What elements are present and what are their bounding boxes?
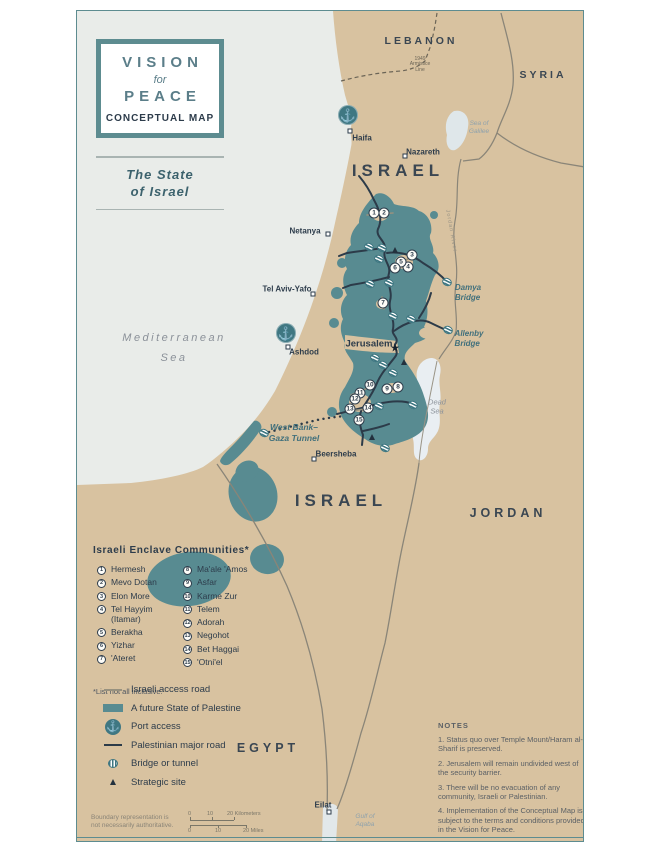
legend-row-fill: A future State of Palestine — [99, 702, 279, 715]
city-dot-haifa — [348, 129, 353, 134]
damya-bridge: Damya Bridge — [455, 283, 481, 303]
water-label-sea-of-galilee: Sea of Galilee — [469, 120, 489, 136]
scale-km-20: 20 Kilometers — [227, 811, 261, 817]
enclave-list-item: 12Adorah — [183, 618, 248, 628]
country-label-syria: SYRIA — [519, 69, 566, 81]
enclave-list-item: 13Negohot — [183, 631, 248, 641]
scale-tick — [190, 817, 191, 820]
map-symbol-legend: Israeli access roadA future State of Pal… — [99, 683, 279, 794]
enclave-marker-14: 14 — [363, 403, 374, 414]
bridge-tunnel-icon — [363, 241, 375, 252]
enclave-name: Telem — [197, 605, 220, 615]
city-label-eilat: Eilat — [315, 801, 332, 810]
bridge-tunnel-icon — [387, 310, 399, 321]
legend-row-port: ⚓Port access — [99, 720, 279, 733]
legend-swatch-site-icon — [99, 779, 127, 785]
bridge-tunnel-icon — [441, 276, 453, 287]
legend-swatch-road-dark-icon — [99, 744, 127, 747]
bridge-tunnel-icon — [373, 400, 385, 411]
enclave-number-badge: 6 — [97, 642, 106, 651]
subtitle-line1: The State — [126, 167, 194, 182]
enclave-name: 'Ateret — [111, 654, 135, 664]
legend-label: Bridge or tunnel — [131, 758, 198, 769]
enclave-list-item: 9Asfar — [183, 578, 248, 588]
port-anchor-ashdod-icon: ⚓ — [276, 323, 296, 343]
city-dot-beersheba — [312, 457, 317, 462]
title-conceptual-map: CONCEPTUAL MAP — [103, 113, 217, 124]
enclave-number-badge: 13 — [183, 632, 192, 641]
enclave-marker-3: 3 — [407, 250, 418, 261]
water-label-gulf-of-aqaba: Gulf of Aqaba — [355, 813, 374, 829]
enclave-number-badge: 2 — [97, 579, 106, 588]
water-label-mediterranean: Mediterranean — [122, 332, 225, 346]
subtitle-line2: of Israel — [131, 184, 190, 199]
city-label-nazareth: Nazareth — [406, 148, 440, 157]
scale-tick — [212, 817, 213, 820]
enclave-name: Karme Zur — [197, 592, 237, 602]
country-label-lebanon: LEBANON — [385, 35, 458, 47]
bridge-tunnel-icon — [379, 442, 391, 453]
bridge-tunnel-icon — [405, 313, 417, 324]
allenby-bridge: Allenby Bridge — [455, 329, 484, 349]
subtitle-rule-bottom — [96, 209, 224, 211]
title-for: for — [103, 74, 217, 86]
enclave-name: Negohot — [197, 631, 229, 641]
legend-label: Strategic site — [131, 777, 186, 788]
enclave-list-item: 2Mevo Dotan — [97, 578, 157, 588]
bridge-tunnel-icon — [442, 324, 454, 335]
legend-swatch-fill-icon — [99, 704, 127, 712]
enclave-number-badge: 7 — [97, 655, 106, 664]
enclave-column-1: 1Hermesh2Mevo Dotan3Elon More4Tel Hayyim… — [97, 565, 157, 668]
enclave-list-item: 8Ma'ale 'Amos — [183, 565, 248, 575]
scale-mi-20: 20 Miles — [243, 828, 263, 834]
notes-items: 1. Status quo over Temple Mount/Haram al… — [438, 735, 584, 834]
enclave-number-badge: 11 — [183, 605, 192, 614]
jordan-river: Jordan River — [444, 209, 457, 253]
enclave-name: Ma'ale 'Amos — [197, 565, 248, 575]
jerusalem-star-icon: ★ — [390, 344, 400, 355]
enclave-number-badge: 12 — [183, 619, 192, 628]
legend-label: Port access — [131, 721, 181, 732]
city-label-ashdod: Ashdod — [289, 348, 319, 357]
map-frame: LEBANONSYRIAISRAELISRAELJORDANEGYPTMedit… — [76, 10, 584, 842]
enclave-list-item: 1Hermesh — [97, 565, 157, 575]
enclave-name: 'Otni'el — [197, 658, 222, 668]
notes-box: NOTES 1. Status quo over Temple Mount/Ha… — [438, 721, 584, 839]
enclave-number-badge: 10 — [183, 592, 192, 601]
city-label-tel-aviv-yafo: Tel Aviv-Yafo — [262, 285, 311, 294]
enclave-number-badge: 14 — [183, 645, 192, 654]
legend-row-bridge: Bridge or tunnel — [99, 757, 279, 770]
scale-tick — [234, 817, 235, 820]
city-label-jerusalem: Jerusalem — [345, 339, 392, 350]
note-item: 3. There will be no evacuation of any co… — [438, 783, 584, 802]
enclave-marker-15: 15 — [354, 415, 365, 426]
city-label-haifa: Haifa — [352, 134, 372, 143]
enclave-marker-13: 13 — [345, 404, 356, 415]
legend-swatch-bridge-icon — [99, 759, 127, 768]
note-item: 1. Status quo over Temple Mount/Haram al… — [438, 735, 584, 754]
title-peace: PEACE — [108, 88, 217, 105]
note-item: 4. Implementation of the Conceptual Map … — [438, 806, 584, 834]
enclave-legend: Israeli Enclave Communities* 1Hermesh2Me… — [93, 545, 303, 565]
enclave-number-badge: 1 — [97, 566, 106, 575]
boundary-disclaimer: Boundary representation is not necessari… — [91, 814, 173, 831]
enclave-list-item: 5Berakha — [97, 628, 157, 638]
water-label-dead-sea: Dead Sea — [428, 398, 446, 417]
strategic-site-icon — [401, 359, 407, 365]
enclave-name: Bet Haggai — [197, 645, 239, 655]
title-vision: VISION — [122, 54, 203, 71]
bridge-tunnel-icon — [383, 277, 395, 288]
enclave-marker-2: 2 — [379, 208, 390, 219]
enclave-marker-6: 6 — [390, 263, 401, 274]
enclave-name: Yizhar — [111, 641, 135, 651]
note-item: 2. Jerusalem will remain undivided west … — [438, 759, 584, 778]
enclave-marker-10: 10 — [365, 380, 376, 391]
water-label-mediterranean-sea: Sea — [160, 352, 187, 366]
country-label-israel-north: ISRAEL — [352, 161, 444, 181]
legend-row-road-gray: Israeli access road — [99, 683, 279, 696]
city-dot-ashdod — [286, 345, 291, 350]
enclave-list-item: 4Tel Hayyim (Itamar) — [97, 605, 157, 625]
enclave-number-badge: 15 — [183, 658, 192, 667]
subtitle-box: The State of Israel — [96, 156, 224, 210]
city-label-beersheba: Beersheba — [316, 450, 357, 459]
enclave-name: Asfar — [197, 578, 217, 588]
scale-mi-0: 0 — [188, 828, 191, 834]
legend-label: Palestinian major road — [131, 740, 226, 751]
legend-swatch-road-gray-icon — [99, 689, 127, 691]
legend-label: A future State of Palestine — [131, 703, 241, 714]
enclave-marker-8: 8 — [393, 382, 404, 393]
enclave-list-item: 14Bet Haggai — [183, 645, 248, 655]
enclave-name: Mevo Dotan — [111, 578, 157, 588]
enclave-list-item: 6Yizhar — [97, 641, 157, 651]
page: LEBANONSYRIAISRAELISRAELJORDANEGYPTMedit… — [0, 0, 660, 850]
enclave-name: Berakha — [111, 628, 143, 638]
enclave-number-badge: 4 — [97, 605, 106, 614]
enclave-name: Tel Hayyim (Itamar) — [111, 605, 153, 625]
subtitle-text: The State of Israel — [96, 158, 224, 209]
tunnel-label: West Bank– Gaza Tunnel — [269, 422, 319, 444]
port-anchor-haifa-icon: ⚓ — [338, 105, 358, 125]
scale-km-line — [190, 820, 234, 821]
bridge-tunnel-icon — [387, 367, 399, 378]
city-dot-nazareth — [403, 154, 408, 159]
country-label-israel-south: ISRAEL — [295, 491, 387, 511]
enclave-list-item: 10Karme Zur — [183, 592, 248, 602]
legend-label: Israeli access road — [131, 684, 210, 695]
bridge-tunnel-icon — [407, 399, 419, 410]
city-dot-netanya — [326, 232, 331, 237]
scale-mi-10: 10 — [215, 828, 221, 834]
enclave-heading: Israeli Enclave Communities* — [93, 545, 303, 556]
city-dot-tel-aviv-yafo — [311, 292, 316, 297]
enclave-marker-9: 9 — [382, 384, 393, 395]
strategic-site-icon — [392, 247, 398, 253]
legend-swatch-port-icon: ⚓ — [99, 719, 127, 735]
enclave-marker-7: 7 — [378, 298, 389, 309]
enclave-number-badge: 9 — [183, 579, 192, 588]
bridge-tunnel-icon — [364, 278, 376, 289]
enclave-list-item: 7'Ateret — [97, 654, 157, 664]
bridge-tunnel-icon — [376, 242, 388, 253]
city-label-netanya: Netanya — [289, 227, 320, 236]
bridge-tunnel-icon — [377, 359, 389, 370]
country-label-jordan: JORDAN — [470, 506, 547, 520]
bridge-tunnel-icon — [373, 253, 385, 264]
strategic-site-icon — [369, 434, 375, 440]
enclave-list-item: 15'Otni'el — [183, 658, 248, 668]
enclave-list-item: 11Telem — [183, 605, 248, 615]
notes-heading: NOTES — [438, 721, 584, 730]
armistice-line: 1949 Armistice Line — [410, 57, 431, 73]
enclave-number-badge: 5 — [97, 628, 106, 637]
legend-row-site: Strategic site — [99, 776, 279, 789]
enclave-column-2: 8Ma'ale 'Amos9Asfar10Karme Zur11Telem12A… — [183, 565, 248, 671]
enclave-list-item: 3Elon More — [97, 592, 157, 602]
enclave-number-badge: 3 — [97, 592, 106, 601]
enclave-number-badge: 8 — [183, 566, 192, 575]
enclave-name: Hermesh — [111, 565, 145, 575]
enclave-name: Elon More — [111, 592, 150, 602]
legend-row-road-dark: Palestinian major road — [99, 739, 279, 752]
title-box: VISION for PEACE CONCEPTUAL MAP — [96, 39, 224, 138]
enclave-name: Adorah — [197, 618, 224, 628]
scale-bar: 0 10 20 Kilometers 0 10 20 Miles — [185, 811, 355, 837]
